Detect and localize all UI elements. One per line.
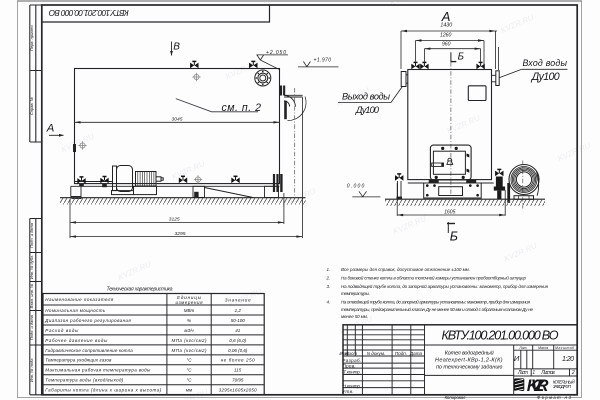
svg-text:измерения: измерения [176,300,204,305]
svg-text:Масштаб: Масштаб [555,346,574,350]
svg-text:3.: 3. [327,284,331,289]
svg-text:Все размеры для справок, допус: Все размеры для справок, допустимое откл… [341,267,470,272]
svg-text:+2.050: +2.050 [266,50,286,56]
svg-text:Наименование показателя: Наименование показателя [45,297,114,302]
svg-text:Масса: Масса [538,346,548,350]
svg-text:Лист: Лист [344,351,357,356]
svg-text:Температура воды (вход/выход): Температура воды (вход/выход) [45,378,124,383]
svg-text:Дата: Дата [409,351,423,356]
svg-text:Подп. и дата: Подп. и дата [29,314,34,340]
svg-text:N докум.: N докум. [367,351,386,356]
svg-text:Максимальная рабочая температу: Максимальная рабочая температура воды [45,368,151,373]
svg-text:Габариты котла (длина х ширина: Габариты котла (длина х ширина х высота) [45,388,162,393]
svg-text:%: % [187,318,191,323]
svg-text:Котел водогрейный: Котел водогрейный [445,349,494,356]
svg-text:Копировал: Копировал [445,395,466,400]
svg-text:Инв. № подл.: Инв. № подл. [29,357,34,382]
svg-text:Б: Б [450,229,458,243]
svg-text:Ду100: Ду100 [531,71,560,83]
svg-text:0,06 (0,6): 0,06 (0,6) [228,348,248,353]
svg-text:Б: Б [458,52,464,63]
svg-text:КВТУ.100.201.00.000 ВО: КВТУ.100.201.00.000 ВО [442,329,559,343]
svg-text:Н.контр.: Н.контр. [343,383,361,388]
svg-text:Heatexpert-КВр-1,2-К(К): Heatexpert-КВр-1,2-К(К) [435,358,503,364]
svg-text:3125: 3125 [169,217,180,223]
svg-text:Гидравлическое сопротивление к: Гидравлическое сопротивление котла [45,348,133,353]
svg-text:Т.контр.: Т.контр. [343,370,361,375]
svg-text:Значение: Значение [225,298,251,303]
svg-text:0.000: 0.000 [347,183,365,189]
svg-text:А: А [46,122,55,134]
svg-text:Листов: Листов [540,370,555,376]
svg-text:Лист: Лист [517,370,528,376]
svg-text:0,6 (6,0): 0,6 (6,0) [229,338,246,343]
svg-text:Взам. инв. №: Взам. инв. № [29,283,34,308]
svg-text:1:20: 1:20 [562,356,574,363]
svg-text:Вход воды: Вход воды [523,58,568,68]
svg-text:1: 1 [532,370,535,376]
svg-text:м3/ч: м3/ч [184,328,194,333]
svg-text:Перв. примен.: Перв. примен. [29,24,34,51]
svg-text:Рабочее давление воды: Рабочее давление воды [45,338,108,343]
svg-text:А: А [441,9,451,24]
svg-text:41: 41 [235,328,241,333]
svg-text:Выход воды: Выход воды [342,92,390,102]
svg-text:3045: 3045 [172,117,183,123]
svg-text:На отводящей трубе котла, до з: На отводящей трубе котла, до запорной ар… [341,299,531,305]
svg-text:На боковой стенке котла в обла: На боковой стенке котла в области топочн… [341,275,526,281]
svg-text:температуры, предохранительный: температуры, предохранительный клапан Ду… [341,306,533,312]
svg-text:115: 115 [234,368,242,373]
svg-text:°С: °С [186,368,192,373]
svg-text:Ду100: Ду100 [355,105,380,115]
svg-text:Инв. № дубл.: Инв. № дубл. [29,255,34,280]
svg-text:Техническая характеристика: Техническая характеристика [107,286,173,292]
svg-text:не более 250: не более 250 [221,358,255,363]
svg-text:менее 50 мм.: менее 50 мм. [341,314,368,319]
svg-text:мм: мм [186,388,192,393]
svg-text:2: 2 [571,370,575,376]
svg-text:ЗАВОД РЭП: ЗАВОД РЭП [553,384,572,389]
svg-text:+1.970: +1.970 [314,57,332,63]
svg-text:Формат А3: Формат А3 [537,395,572,400]
svg-text:3295: 3295 [175,231,186,237]
svg-text:Справ. №: Справ. № [29,96,34,115]
svg-text:°С: °С [186,378,192,383]
svg-text:Лит.: Лит. [518,346,527,350]
svg-text:На подводящей трубе котла, д: На подводящей трубе котла, до запорной а… [341,283,549,289]
svg-text:Утв.: Утв. [342,389,353,394]
svg-text:70/95: 70/95 [232,378,244,383]
svg-text:50-100: 50-100 [231,318,246,323]
svg-text:1260: 1260 [440,32,451,38]
svg-text:KVZR: KVZR [527,377,549,395]
svg-text:1605: 1605 [444,210,455,216]
svg-text:температуры.: температуры. [341,291,370,296]
svg-text:КВТУ.100.201.00.000 ВО: КВТУ.100.201.00.000 ВО [48,8,129,17]
svg-text:по техническому заданию: по техническому заданию [436,365,503,371]
svg-text:МПа (кгс/см2): МПа (кгс/см2) [172,338,208,343]
svg-text:Температура уходящих газов: Температура уходящих газов [45,358,112,363]
svg-text:МПа (кгс/см2): МПа (кгс/см2) [172,348,208,353]
svg-text:Подп. и дата: Подп. и дата [29,222,34,248]
svg-text:2.: 2. [326,276,331,281]
svg-text:Расход воды: Расход воды [45,328,79,333]
svg-text:Номинальная мощность: Номинальная мощность [45,308,106,313]
svg-text:1,2: 1,2 [235,308,242,313]
svg-text:В: В [173,41,180,52]
svg-text:И: И [514,354,520,363]
svg-text:960: 960 [442,41,451,47]
svg-text:4.: 4. [327,300,331,305]
svg-text:Подп.: Подп. [395,351,407,356]
svg-text:Пров.: Пров. [343,363,356,368]
svg-text:°С: °С [186,358,192,363]
svg-text:Диапазон рабочего регулировани: Диапазон рабочего регулирования [44,318,131,323]
svg-text:1.: 1. [327,267,331,272]
svg-text:3295х1605х2050: 3295х1605х2050 [219,388,257,393]
svg-text:МВт: МВт [184,308,195,313]
